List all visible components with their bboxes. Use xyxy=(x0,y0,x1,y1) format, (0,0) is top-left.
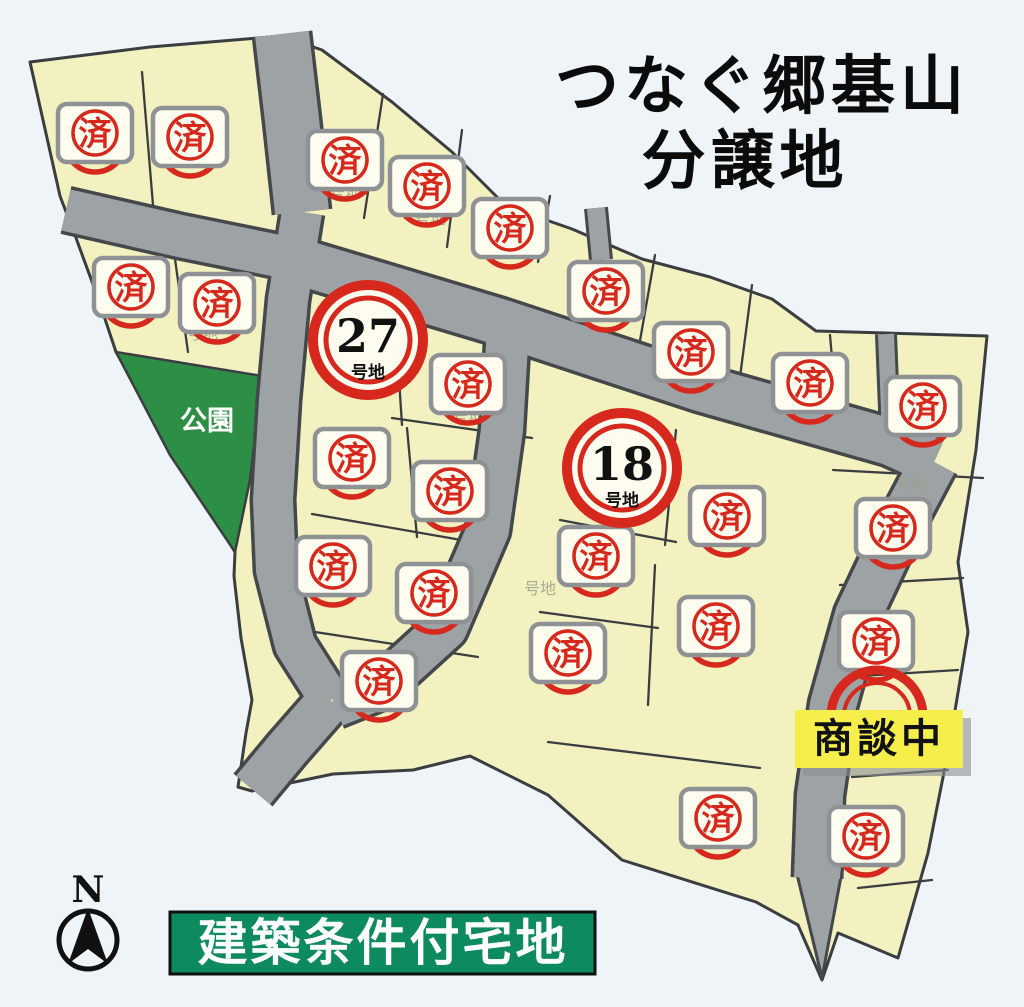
sold-stamp: 済 xyxy=(180,274,254,342)
sold-stamp-char: 済 xyxy=(411,168,445,205)
sold-stamp-char: 済 xyxy=(418,575,452,612)
sold-stamp-char: 済 xyxy=(363,663,397,700)
available-lot-27: 27号地 xyxy=(313,285,423,395)
subdivision-map: 公園 号地号地号地号地号地号地 済済済済済済済済済済済済済済済済済済済済済済済済… xyxy=(0,0,1024,1007)
available-lot-number: 18 xyxy=(590,437,654,491)
sold-stamp: 済 xyxy=(886,377,960,445)
page-title-line1: つなぐ郷基山 xyxy=(555,50,969,122)
sold-stamp-char: 済 xyxy=(711,498,745,535)
sold-stamp-char: 済 xyxy=(702,800,736,837)
sold-stamp-char: 済 xyxy=(494,210,528,247)
flyer-page: 公園 号地号地号地号地号地号地 済済済済済済済済済済済済済済済済済済済済済済済済… xyxy=(0,0,1024,1007)
sold-stamp: 済 xyxy=(58,104,132,172)
sold-stamp-char: 済 xyxy=(452,366,486,403)
park-area xyxy=(116,352,262,552)
sold-stamp-char: 済 xyxy=(317,548,351,585)
sold-stamp: 済 xyxy=(296,537,370,605)
sold-stamp-char: 済 xyxy=(590,273,624,310)
sold-stamp: 済 xyxy=(431,355,505,423)
sold-stamp: 済 xyxy=(315,429,389,497)
page-title-line2: 分譲地 xyxy=(642,125,849,197)
sold-stamp: 済 xyxy=(308,131,382,199)
sold-stamp: 済 xyxy=(559,527,633,595)
available-lot-18: 18号地 xyxy=(567,413,677,523)
park-label: 公園 xyxy=(180,406,234,436)
sold-stamp: 済 xyxy=(681,789,755,857)
sold-stamp-char: 済 xyxy=(201,285,235,322)
sold-stamp: 済 xyxy=(94,258,168,326)
sold-stamp-char: 済 xyxy=(907,388,941,425)
sold-stamp-char: 済 xyxy=(580,538,614,575)
sold-stamp: 済 xyxy=(690,487,764,555)
sold-stamp-char: 済 xyxy=(79,115,113,152)
sold-stamp-char: 済 xyxy=(675,334,709,371)
sold-stamp: 済 xyxy=(390,157,464,225)
available-lot-number: 27 xyxy=(336,309,400,363)
faint-lot-label: 号地 xyxy=(524,580,556,598)
sold-stamp-char: 済 xyxy=(336,440,370,477)
sold-stamp-char: 済 xyxy=(174,119,208,156)
sold-stamp: 済 xyxy=(397,564,471,632)
sold-stamp-char: 済 xyxy=(552,635,586,672)
faint-lot-label: 号地 xyxy=(896,476,928,494)
sold-stamp-char: 済 xyxy=(434,473,468,510)
sold-stamp: 済 xyxy=(654,323,728,391)
conditions-banner: 建築条件付宅地 xyxy=(170,912,595,974)
sold-stamp: 済 xyxy=(413,462,487,530)
sold-stamp-char: 済 xyxy=(700,608,734,645)
negotiating-label: 商談中 xyxy=(813,717,945,761)
sold-stamp: 済 xyxy=(856,499,930,567)
available-lot-suffix: 号地 xyxy=(605,490,639,510)
compass-north-label: N xyxy=(72,869,105,911)
sold-stamp: 済 xyxy=(473,199,547,267)
sold-stamp-char: 済 xyxy=(115,269,149,306)
compass-icon: N xyxy=(59,869,117,969)
conditions-banner-text: 建築条件付宅地 xyxy=(198,915,569,971)
sold-stamp: 済 xyxy=(829,807,903,875)
sold-stamp: 済 xyxy=(153,108,227,176)
sold-stamp-char: 済 xyxy=(850,818,884,855)
sold-stamp: 済 xyxy=(531,624,605,692)
sold-stamp-char: 済 xyxy=(794,365,828,402)
available-lot-suffix: 号地 xyxy=(351,362,385,382)
sold-stamp: 済 xyxy=(342,652,416,720)
sold-stamp: 済 xyxy=(773,354,847,422)
sold-stamp: 済 xyxy=(569,262,643,330)
sold-stamp-char: 済 xyxy=(860,623,894,660)
sold-stamp-char: 済 xyxy=(877,510,911,547)
sold-stamp: 済 xyxy=(679,597,753,665)
sold-stamp-char: 済 xyxy=(329,142,363,179)
